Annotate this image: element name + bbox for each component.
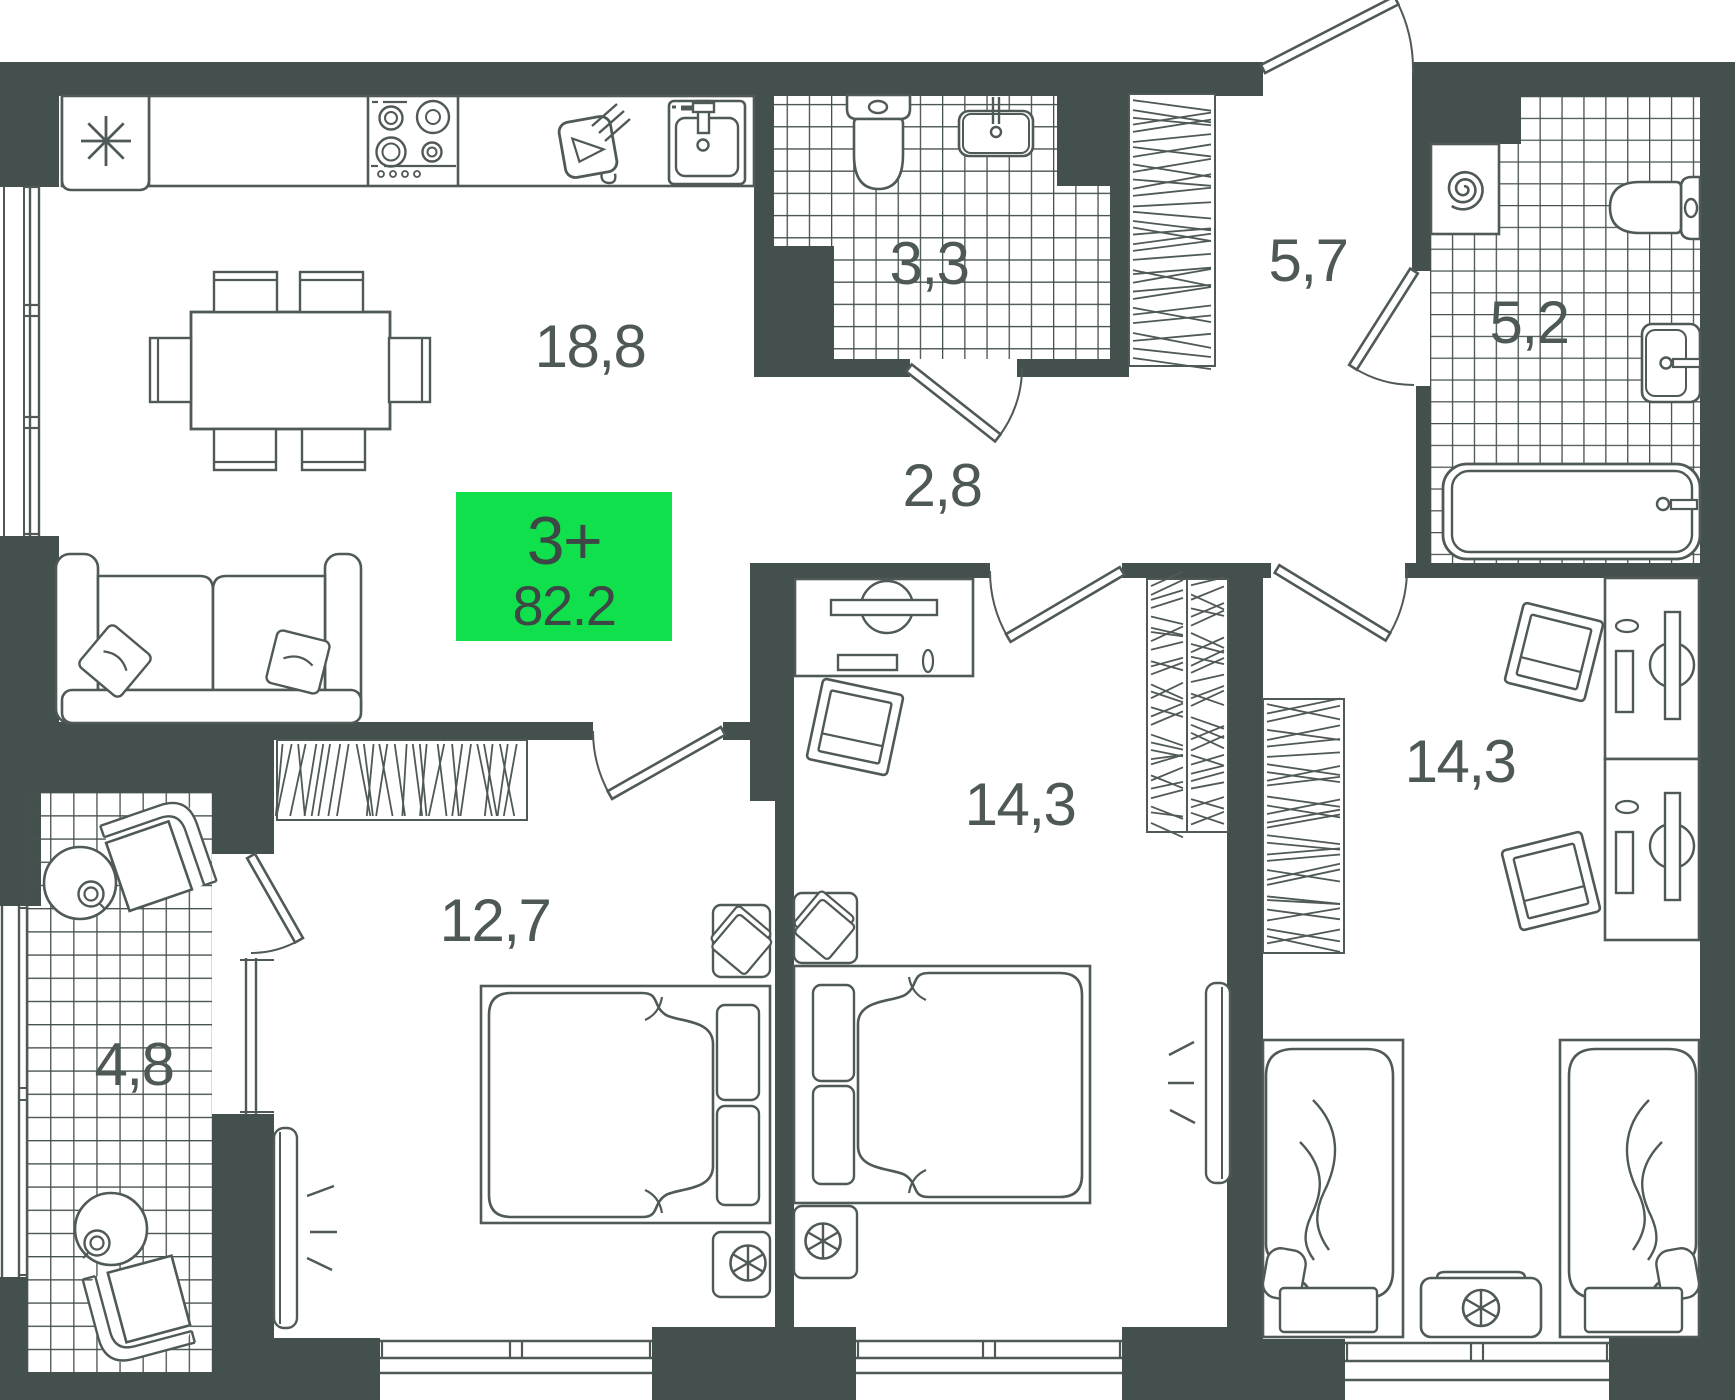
svg-text:18,8: 18,8 [535, 313, 646, 380]
svg-text:4,8: 4,8 [95, 1031, 174, 1098]
svg-text:3+: 3+ [527, 503, 602, 579]
svg-text:5,7: 5,7 [1269, 227, 1348, 294]
svg-text:2,8: 2,8 [903, 452, 982, 519]
svg-text:3,3: 3,3 [890, 230, 969, 297]
svg-text:14,3: 14,3 [965, 771, 1076, 838]
svg-text:5,2: 5,2 [1490, 289, 1569, 356]
svg-text:82.2: 82.2 [513, 574, 616, 637]
svg-text:14,3: 14,3 [1405, 728, 1516, 795]
svg-text:12,7: 12,7 [440, 887, 551, 954]
